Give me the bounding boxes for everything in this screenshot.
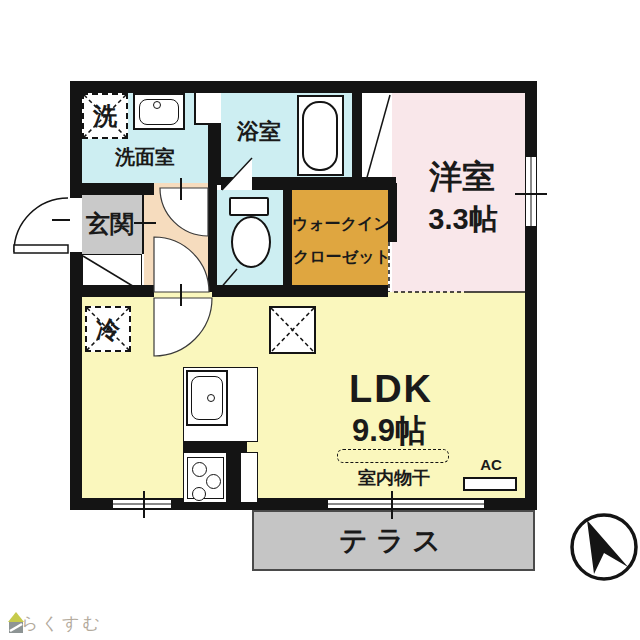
wall-washroom-bottom (70, 183, 154, 195)
window-bottom-large (327, 499, 485, 509)
wall-kitchen-stub (227, 452, 240, 510)
indoor-drying-label: 室内物干 (358, 469, 430, 487)
storage-x-box (269, 306, 316, 354)
refrigerator-symbol-label: 冷 (96, 318, 120, 342)
wall-toilet-right (283, 190, 292, 292)
wall-wic-bottom (292, 285, 388, 297)
kitchen-side-panel (240, 452, 258, 503)
ldk-size-label: 9.9帖 (352, 415, 426, 446)
wall-under-bath (221, 177, 396, 190)
pipe-space-notch (194, 93, 221, 125)
hall-floor (144, 183, 208, 292)
toilet-tank (229, 197, 269, 216)
bathroom-label: 浴室 (237, 121, 281, 143)
entrance-label: 玄関 (86, 212, 134, 236)
wall-top (70, 81, 537, 93)
wall-bath-right (352, 93, 362, 179)
wall-right (525, 81, 537, 510)
north-arrow-icon (572, 515, 636, 579)
stove-burner-1 (192, 462, 207, 477)
wall-ldk-top-left (70, 285, 154, 297)
western-room-size-label: 3.3帖 (428, 205, 497, 234)
wall-toilet-left (208, 183, 217, 292)
wic-label-line1: ウォークイン (292, 216, 390, 232)
washer-symbol-label: 洗 (93, 104, 117, 128)
bathtub-inner (302, 101, 338, 171)
ac-label: AC (480, 457, 502, 472)
wic-label-line2: クローゼット (293, 249, 391, 265)
wall-kitchen-bar (183, 442, 247, 452)
stove-burner-3 (192, 487, 206, 501)
wall-entrance-hall-line (142, 195, 144, 254)
logo-text: らくすむ (21, 615, 103, 632)
toilet-bowl (231, 216, 271, 268)
walk-in-closet-floor (292, 190, 388, 292)
window-right-wall (525, 156, 537, 227)
kitchen-faucet-dot (207, 394, 215, 402)
washbasin-faucet-dot (153, 101, 161, 109)
western-room-label: 洋室 (429, 160, 495, 193)
floor-plan-page: 洗 洗面室 浴室 玄関 ウォークイン クローゼット 洋室 3.3帖 冷 LDK … (0, 0, 640, 640)
window-bottom-small (112, 499, 172, 509)
indoor-drying-outline (337, 449, 449, 463)
ac-unit-box (463, 477, 517, 491)
entrance-door-arc (14, 198, 70, 253)
washroom-label: 洗面室 (115, 147, 175, 167)
wall-western-left (388, 183, 397, 242)
wall-ldk-top-mid (212, 285, 292, 297)
stove-burner-2 (206, 474, 221, 489)
western-room-door-nook (362, 93, 392, 183)
terrace-label: テラス (339, 527, 449, 555)
wall-left-upper (70, 81, 82, 198)
ldk-label: LDK (349, 370, 433, 408)
